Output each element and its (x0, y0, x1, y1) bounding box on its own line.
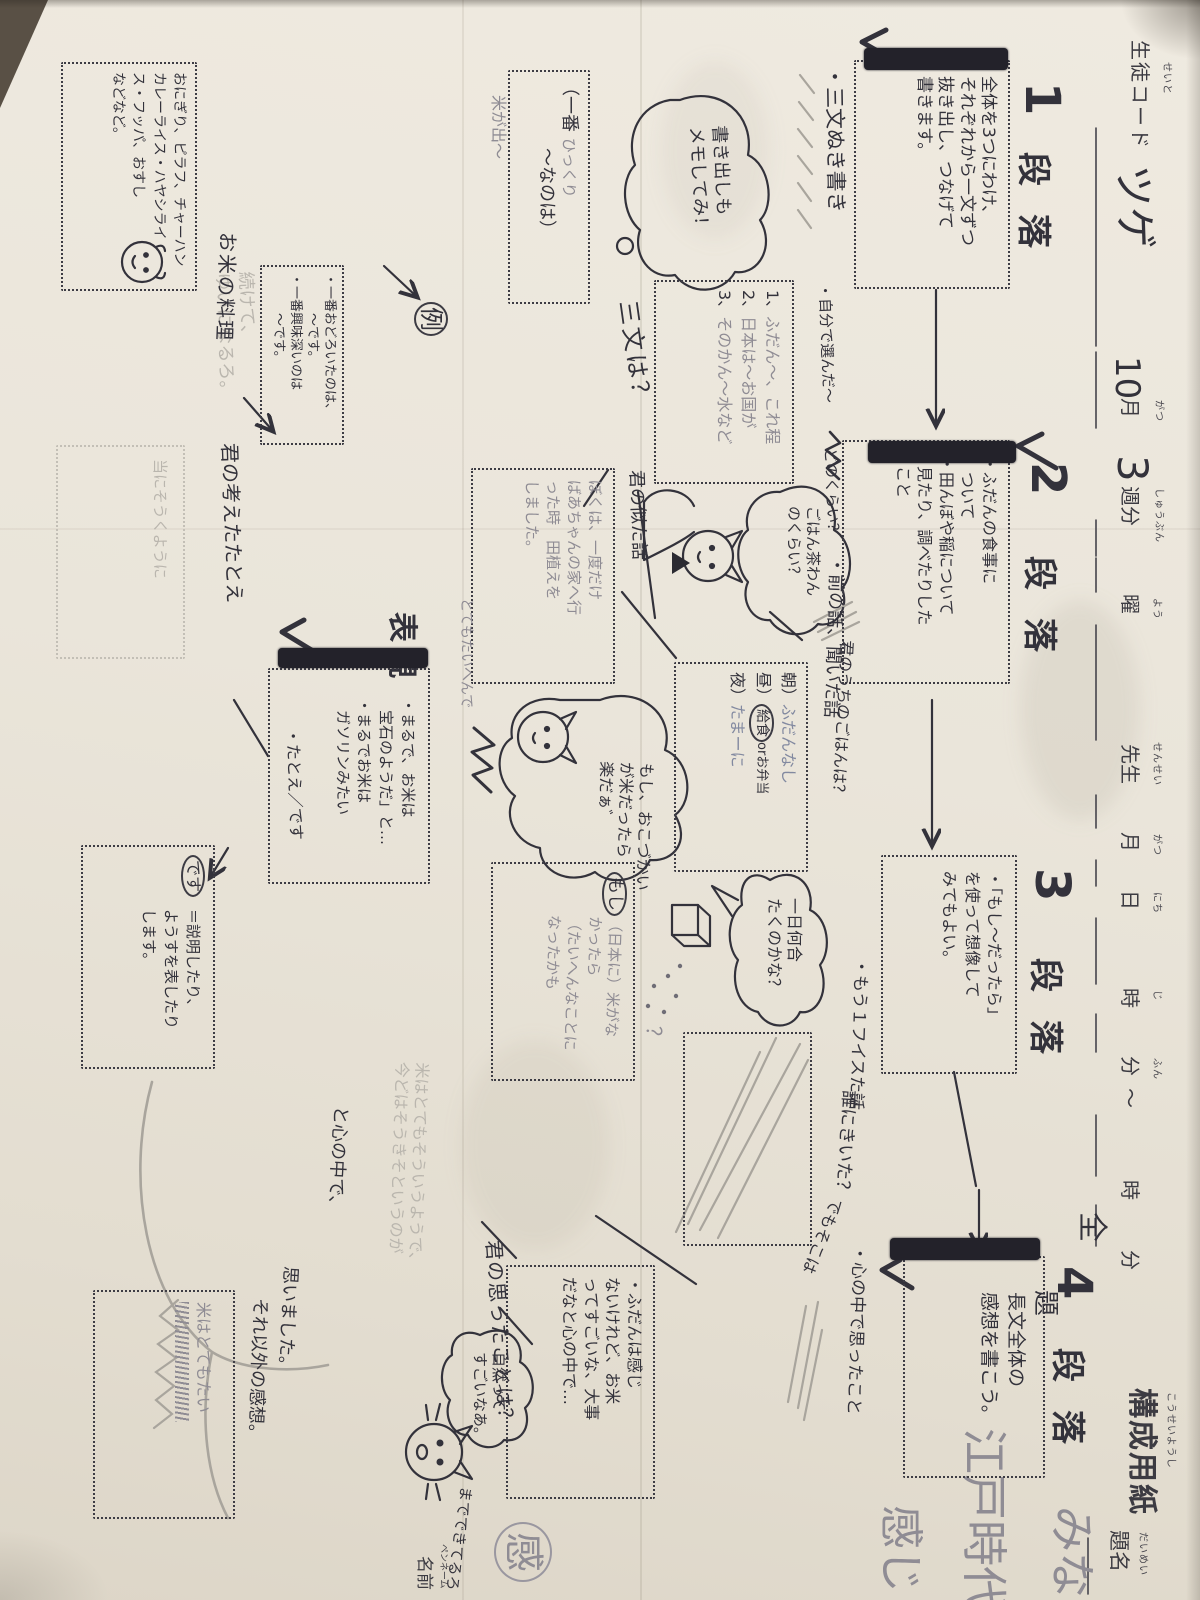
omou-pencil-text: 米はとてもそういうようで、今どはそうきそというのが (384, 1061, 431, 1268)
tatoe-desu-note: ・たとえ／です (282, 728, 306, 841)
kome-taisetsu-box: 米はとてもたい (93, 1290, 235, 1519)
student-code-furigana: せいと (1161, 62, 1176, 95)
photo-edge-shadow (1186, 0, 1200, 1600)
weekday-furigana: よう (1151, 598, 1166, 620)
moshi-circle: もし (602, 872, 627, 916)
paragraph-1-text: 全体を3つにわけ、それぞれから一文ずつ抜き出し、つなげて書きます。 (913, 76, 998, 246)
desu-circle: です (181, 855, 205, 897)
time-minute-label: 分 (1117, 1056, 1142, 1076)
time-minute-furigana: ふん (1151, 1058, 1166, 1080)
taue-episode-box: ぼくは、一度だけばあちゃんの家へ行った時 田植えをしました。 (471, 468, 615, 684)
week-furigana: しゅうぶん (1153, 488, 1168, 543)
kangae-box: 当にそうくように (56, 445, 185, 659)
gohan-cloud-text: ごはん茶わんのくらい？ (785, 506, 823, 596)
tilde: 〜 (1117, 1088, 1142, 1108)
sheet-title: 構成用紙 (1123, 1388, 1161, 1516)
paragraph-2-number: 2 (1018, 462, 1078, 495)
desu-setsumei-box: です ＝説明したり、ようすを表したりします。 (81, 845, 215, 1069)
sanbun-nukigaki-note: ・三文ぬき書き (820, 66, 849, 213)
time-hour2-label: 時 (1117, 1180, 1142, 1200)
date-day-furigana: にち (1151, 892, 1166, 914)
quote-pattern-text: ・一番おどろいたのは、〜です。・一番興味深いのは〜です。 (269, 273, 337, 416)
title-label: 題名 (1106, 1530, 1132, 1572)
gou-bubble-text: 一日何合たくのかな？ (764, 898, 804, 994)
week-label: 週分 (1117, 486, 1142, 526)
paragraph-4-text: 長文全体の感想を書こう。 (976, 1292, 1029, 1424)
composition-sheet: せいと 生徒コード ツゲ 10 がつ 月 3 しゅうぶん 週分 よう 曜 せんせ… (0, 0, 1200, 1600)
meal-box: 朝）ふだんなし昼）給食orお弁当夜）たまーに (674, 662, 808, 872)
paragraph-2-text: ・ふだんの食事について・田んぼや稲について見たり、調べたりしたこと (892, 456, 1000, 625)
redaction-bar (278, 648, 428, 668)
time-minute2-label: 分 (1117, 1250, 1142, 1270)
paragraph-2-box: ・ふだんの食事について・田んぼや稲について見たり、調べたりしたこと (842, 440, 1010, 684)
sheet-title-furigana: こうせいようし (1165, 1392, 1180, 1469)
paragraph-4-extra-zen: 全 (1073, 1212, 1111, 1242)
month-furigana: がつ (1153, 400, 1168, 422)
time-hour-furigana: じ (1151, 990, 1166, 1001)
redaction-bar (890, 1238, 1040, 1260)
fudan-kanjinai-box: ・ふだんは感じないけれど、お米ってすごいな、大事だなと心の中で… (506, 1265, 655, 1499)
date-month-label: 月 (1117, 832, 1142, 852)
redaction-bar (864, 48, 1008, 70)
paragraph-4-extra-dai: 題 (1029, 1290, 1062, 1316)
month-value: 10 (1106, 356, 1149, 399)
weekday-label: 曜 (1117, 594, 1142, 614)
name-label: 名前 (413, 1556, 434, 1590)
month-label: 月 (1117, 398, 1142, 418)
scribbled-blank-box (683, 1032, 812, 1246)
paragraph-1-number: 1 (1012, 82, 1072, 115)
paragraph-1-box: 全体を3つにわけ、それぞれから一文ずつ抜き出し、つなげて書きます。 (854, 60, 1010, 289)
paragraph-2-label: 段落 (1018, 556, 1061, 680)
paragraph-1-label: 段落 (1012, 152, 1055, 276)
three-sentence-list-box: 1、ふだん〜、これ程2、日本は〜お国が3、そのかん〜水など (654, 280, 794, 484)
paragraph-3-box: ・「もし〜だったら」を使って想像してみてもよい。 (881, 855, 1017, 1074)
teacher-furigana: せんせい (1151, 742, 1166, 786)
moshi-text: （日本に）米がなかったら（たいへんなことになったかも (540, 915, 626, 1053)
rice-question-mark: ？ (641, 1026, 666, 1046)
paragraph-3-text: ・「もし〜だったら」を使って想像してみてもよい。 (938, 871, 1005, 1023)
kakidashi-cloud-text: 書き出しもメモしてみ！ (684, 125, 735, 235)
ryouri-box: おにぎり、ピラフ、チャーハンカレーライス・ハヤシライス・フッパ、おすしなどなど。 (61, 62, 197, 291)
paragraph-4-box: 長文全体の感想を書こう。 題 (903, 1256, 1045, 1478)
photographed-worksheet: せいと 生徒コード ツゲ 10 がつ 月 3 しゅうぶん 週分 よう 曜 せんせ… (0, 0, 1200, 1600)
moshi-box: もし （日本に）米がなかったら（たいへんなことになったかも (491, 862, 635, 1081)
meal-text: 朝）ふだんなし昼）給食orお弁当夜）たまーに (724, 672, 800, 794)
kangae-faint-text: 当にそうくように (150, 459, 169, 579)
rei-example-mark: 例 (414, 302, 448, 336)
date-day-label: 日 (1117, 890, 1142, 910)
paragraph-3-label: 段落 (1024, 958, 1067, 1082)
ryouri-title: お米の料理 (211, 232, 240, 343)
kome-ga-de-note: 米が出〜 (488, 95, 508, 159)
time-hour-label: 時 (1117, 988, 1142, 1008)
student-code-value: ツゲ (1106, 164, 1161, 250)
taue-episode-text: ぼくは、一度だけばあちゃんの家へ行った時 田植えをしました。 (521, 480, 605, 615)
three-sentence-list: 1、ふだん〜、これ程2、日本は〜お国が3、そのかん〜水など (712, 290, 784, 444)
quote-pattern-box: ・一番おどろいたのは、〜です。・一番興味深いのは〜です。 (260, 265, 344, 445)
draft-title-line: 感じ (873, 1505, 928, 1593)
ichiban-text: （一番 ひっくり〜なのは） (535, 78, 580, 238)
paragraph-3-number: 3 (1022, 868, 1082, 901)
kimi-no-nita-hanashi-label: 君の似た話 (624, 470, 650, 561)
photo-corner-shadow (0, 0, 48, 108)
ryouri-text: おにぎり、ピラフ、チャーハンカレーライス・ハヤシライス・フッパ、おすしなどなど。 (108, 72, 189, 266)
paragraph-4-label: 段落 (1046, 1348, 1089, 1472)
week-value: 3 (1106, 455, 1159, 482)
desu-text: ＝説明したり、ようすを表したりします。 (138, 909, 203, 1029)
redaction-bar (868, 441, 1016, 463)
ichiban-box: （一番 ひっくり〜なのは） (508, 70, 590, 304)
teacher-label: 先生 (1117, 744, 1142, 784)
draft-kan-char: 感 (494, 1522, 552, 1582)
hyougen-text: ・まるで、お米は宝石のようだ」と…・まるでお米はガソリンみたい (331, 698, 418, 845)
kome-taisetsu-text: 米はとてもたい (173, 1302, 213, 1422)
photo-edge-shadow (0, 0, 1200, 8)
fudan-kanjinai-text: ・ふだんは感じないけれど、お米ってすごいな、大事だなと心の中で… (559, 1277, 645, 1420)
totemo-taihen-note: とてもたいへんで (457, 598, 475, 708)
title-furigana: だいめい (1137, 1532, 1152, 1576)
draft-title-line: みなさんは (1043, 1506, 1101, 1600)
photo-corner-shadow (0, 1530, 110, 1600)
date-month-furigana: がつ (1151, 834, 1166, 856)
